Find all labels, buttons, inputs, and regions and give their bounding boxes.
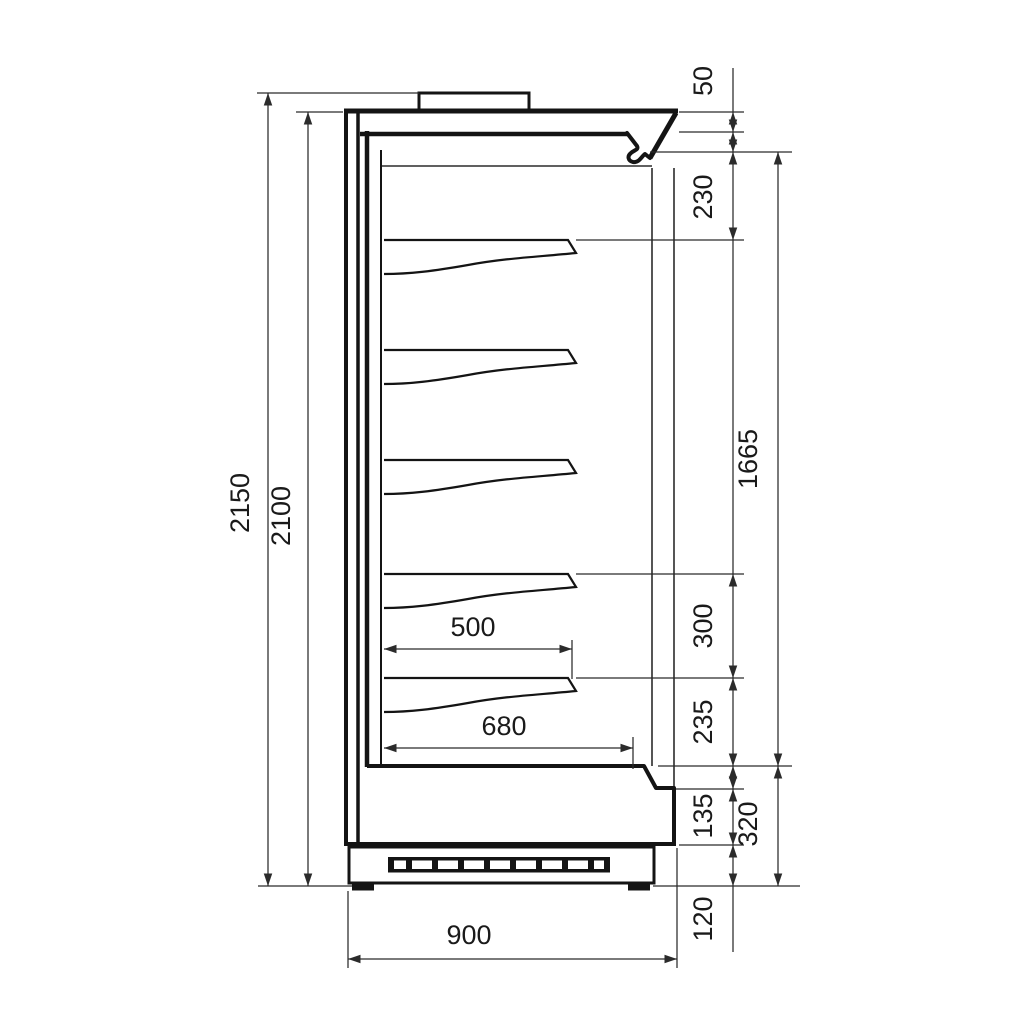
ventilation-grille	[388, 857, 610, 873]
technical-drawing-page: 2150 2100 50 230 1665 300 235 135 320 12…	[0, 0, 1024, 1024]
right-foot	[628, 883, 650, 891]
shelf-4	[384, 574, 576, 608]
grille-slot	[490, 861, 510, 870]
deck-and-front-step	[367, 766, 674, 844]
dim-label-front-panel: 135	[688, 793, 718, 838]
grille-slot	[542, 861, 562, 870]
grille-slot	[516, 861, 536, 870]
extension-lines	[257, 68, 800, 968]
dim-label-plinth-height: 120	[688, 896, 718, 941]
dim-label-height-without-top: 2100	[266, 486, 296, 546]
dim-label-overall-height: 2150	[225, 473, 255, 533]
dimension-labels: 2150 2100 50 230 1665 300 235 135 320 12…	[225, 66, 763, 950]
canopy-front-diagonal	[650, 113, 676, 158]
grille-slot	[412, 861, 432, 870]
dim-label-inner-height: 1665	[733, 429, 763, 489]
grille-slot	[438, 861, 458, 870]
grille-slot	[464, 861, 484, 870]
shelf-2	[384, 350, 576, 384]
dim-label-overall-depth: 900	[446, 920, 491, 950]
grille-slot	[594, 861, 604, 870]
cabinet-section-drawing: 2150 2100 50 230 1665 300 235 135 320 12…	[0, 0, 1024, 1024]
dim-label-bottom-shelf-to-deck: 235	[688, 699, 718, 744]
shelf-3	[384, 460, 576, 494]
dim-label-top-edge: 50	[688, 66, 718, 96]
dim-label-shelf-depth: 500	[450, 612, 495, 642]
dim-label-deck-depth: 680	[481, 711, 526, 741]
dim-label-shelf-spacing: 300	[688, 603, 718, 648]
grille-slot	[394, 861, 406, 870]
dim-label-deck-to-floor: 320	[733, 801, 763, 846]
dim-label-first-shelf-gap: 230	[688, 174, 718, 219]
air-discharge-curl	[627, 133, 650, 162]
shelf-5	[384, 678, 576, 712]
top-cap	[419, 93, 529, 111]
shelf-1	[384, 240, 576, 274]
left-foot	[352, 883, 374, 891]
grille-slot	[568, 861, 588, 870]
